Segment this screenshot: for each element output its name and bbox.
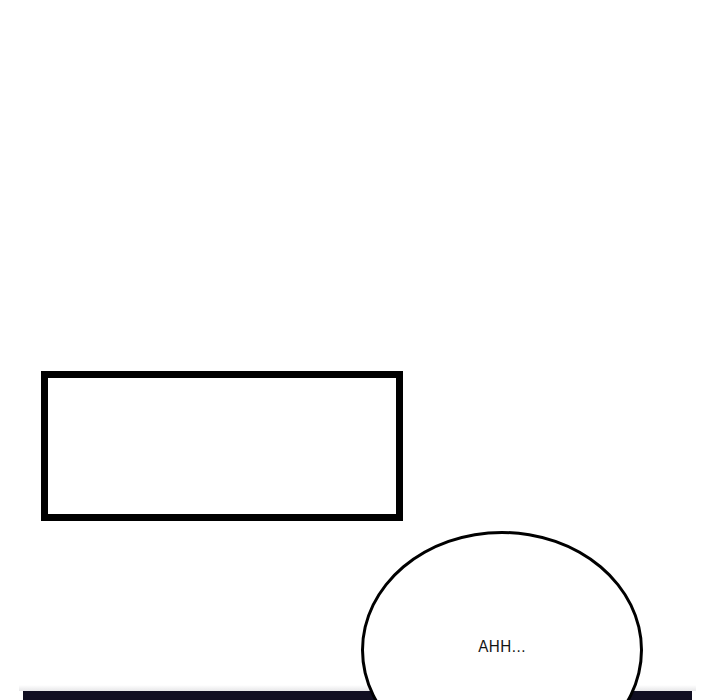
empty-caption-box — [41, 371, 403, 521]
comic-panel: AHH... — [0, 0, 720, 700]
speech-text: AHH... — [478, 638, 526, 656]
speech-bubble: AHH... — [361, 531, 643, 700]
